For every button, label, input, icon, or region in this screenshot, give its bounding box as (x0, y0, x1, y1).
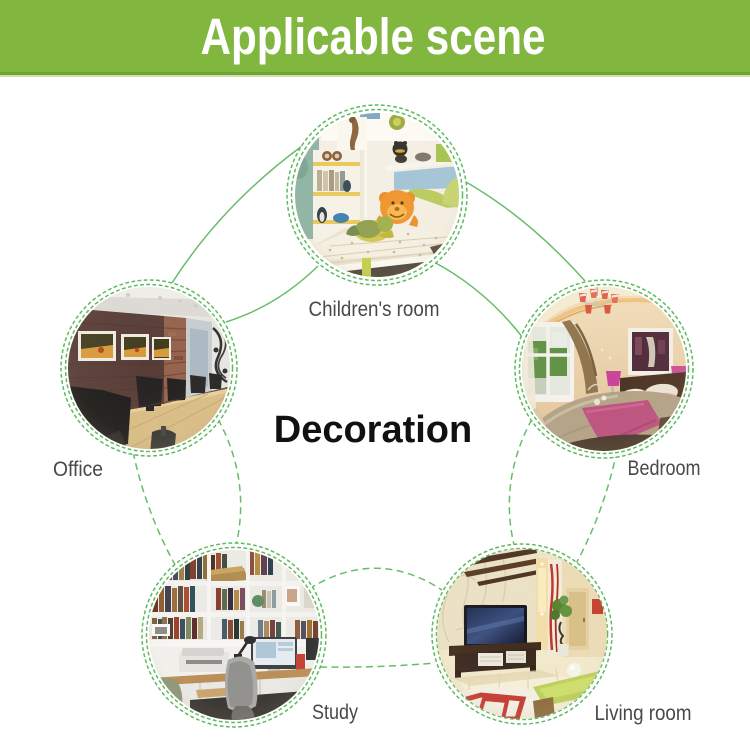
svg-text:Bedroom: Bedroom (628, 457, 701, 480)
svg-text:Study: Study (312, 701, 358, 724)
svg-text:Living room: Living room (595, 702, 692, 725)
svg-text:Children's room: Children's room (309, 298, 440, 321)
svg-text:Office: Office (53, 458, 103, 481)
svg-text:Decoration: Decoration (274, 409, 472, 451)
svg-text:Applicable scene: Applicable scene (201, 8, 546, 65)
